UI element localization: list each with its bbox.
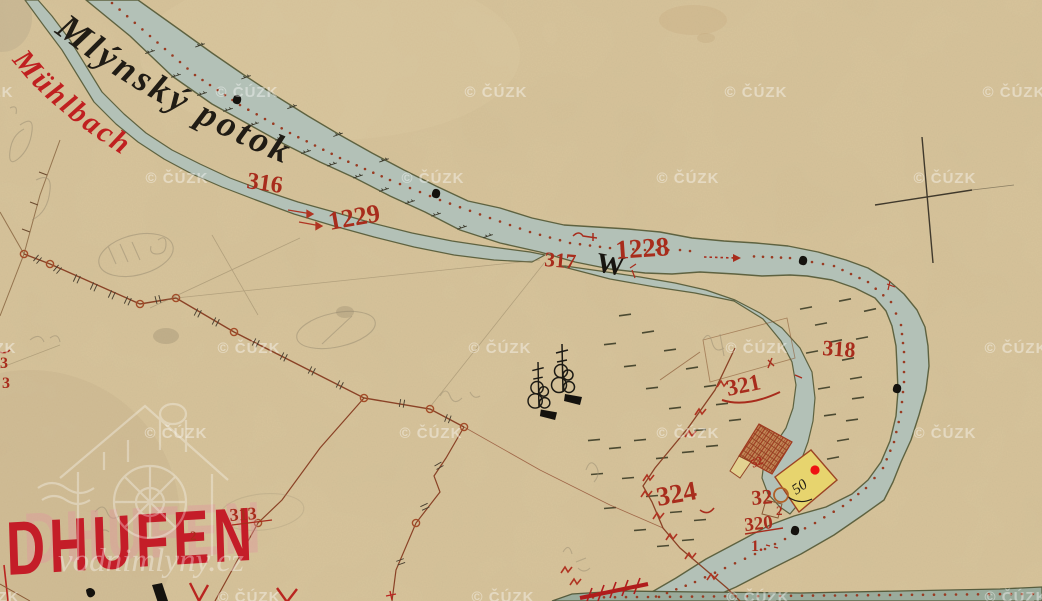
svg-text:317: 317 [544,247,577,274]
svg-text:© ČÚZK: © ČÚZK [985,588,1042,601]
svg-text:© ČÚZK: © ČÚZK [726,339,789,357]
svg-text:© ČÚZK: © ČÚZK [914,169,977,187]
svg-text:© ČÚZK: © ČÚZK [465,83,528,101]
svg-text:© ČÚZK: © ČÚZK [727,588,790,601]
svg-text:vodnimlyny.cz: vodnimlyny.cz [58,543,244,579]
svg-text:1.: 1. [751,538,763,555]
svg-text:© ČÚZK: © ČÚZK [914,424,977,442]
svg-text:© ČÚZK: © ČÚZK [402,169,465,187]
svg-text:313: 313 [229,503,257,525]
svg-text:© ČÚZK: © ČÚZK [725,83,788,101]
svg-text:© ČÚZK: © ČÚZK [146,169,209,187]
svg-text:316: 316 [245,168,284,199]
svg-text:© ČÚZK: © ČÚZK [0,588,19,601]
svg-text:© ČÚZK: © ČÚZK [985,339,1042,357]
svg-text:© ČÚZK: © ČÚZK [218,588,281,601]
svg-text:2: 2 [776,503,783,518]
svg-text:1228: 1228 [614,231,670,265]
svg-text:32: 32 [750,484,773,510]
svg-text:© ČÚZK: © ČÚZK [216,83,279,101]
svg-text:318: 318 [822,335,857,362]
svg-text:© ČÚZK: © ČÚZK [983,83,1042,101]
svg-text:2: 2 [190,528,197,543]
svg-text:© ČÚZK: © ČÚZK [218,339,281,357]
svg-text:© ČÚZK: © ČÚZK [469,339,532,357]
svg-text:3: 3 [0,355,8,372]
svg-text:© ČÚZK: © ČÚZK [0,339,16,357]
svg-text:© ČÚZK: © ČÚZK [400,424,463,442]
svg-text:© ČÚZK: © ČÚZK [0,83,13,101]
svg-text:© ČÚZK: © ČÚZK [657,169,720,187]
svg-text:3: 3 [2,375,10,392]
svg-text:© ČÚZK: © ČÚZK [657,424,720,442]
svg-text:© ČÚZK: © ČÚZK [472,588,535,601]
